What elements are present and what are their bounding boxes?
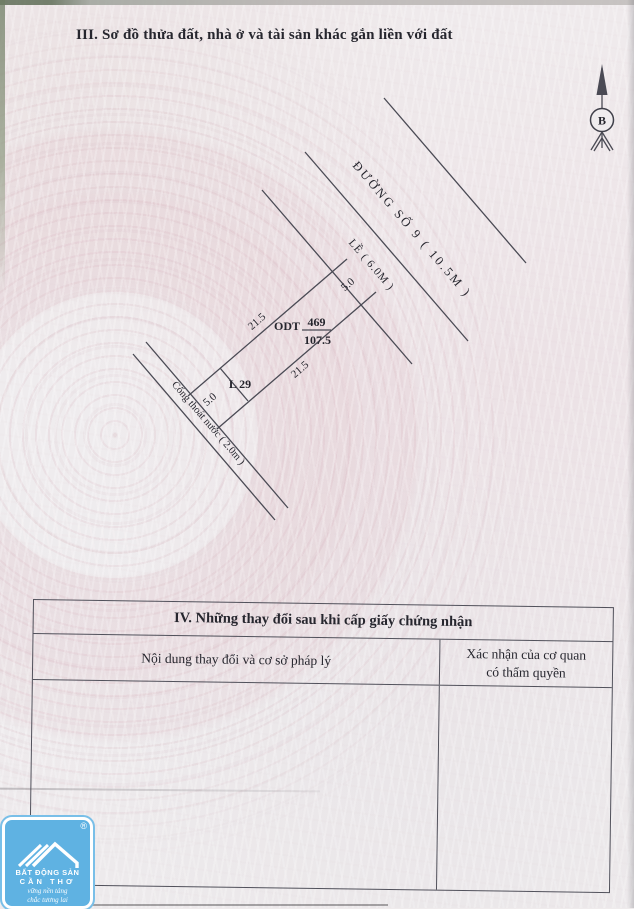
section-iii-title: III. Sơ đồ thửa đất, nhà ở và tài sản kh… bbox=[76, 27, 453, 44]
parcel-side-right bbox=[217, 305, 361, 429]
certificate-page: III. Sơ đồ thửa đất, nhà ở và tài sản kh… bbox=[0, 0, 634, 908]
parcel-back-edge bbox=[220, 368, 248, 401]
brand-name-line1: BẤT ĐỘNG SẢN bbox=[5, 868, 90, 877]
authority-confirmation-cell bbox=[436, 686, 612, 892]
drain-edge-lower bbox=[133, 354, 275, 520]
col-header-authority-line1: Xác nhận của cơ quan bbox=[466, 645, 586, 664]
frontage-line bbox=[262, 190, 412, 364]
sidewalk-label: LỀ ( 6.0M ) bbox=[346, 236, 397, 293]
dimension-front: 5.0 bbox=[339, 275, 358, 293]
dimension-right-side: 21.5 bbox=[289, 359, 312, 381]
scan-edge-top bbox=[0, 0, 634, 5]
col-header-change-content: Nội dung thay đổi và cơ sở pháp lý bbox=[33, 634, 440, 685]
house-icon bbox=[11, 828, 84, 868]
compass-north-label: B bbox=[598, 114, 606, 128]
dimension-back: 5.0 bbox=[201, 390, 220, 408]
parcel-annotation: ODT 469 107.5 bbox=[274, 315, 331, 347]
compass-north-icon: B bbox=[591, 64, 614, 151]
changes-table-header-row: Nội dung thay đổi và cơ sở pháp lý Xác n… bbox=[33, 634, 613, 688]
frontage-tick-b bbox=[361, 292, 376, 305]
land-plot-diagram: B ĐƯỜNG SỐ 9 ( 10.5M ) LỀ ( 6.0M ) 5.0 2… bbox=[0, 0, 634, 575]
road-edge-lower bbox=[305, 152, 468, 341]
brand-logo: ® BẤT ĐỘNG SẢN CẦN THƠ vững nền tảng chắ… bbox=[2, 817, 93, 909]
changes-table-body-row bbox=[30, 680, 612, 892]
col-header-authority-confirmation: Xác nhận của cơ quan có thẩm quyền bbox=[439, 640, 613, 687]
parcel-side-left bbox=[188, 272, 332, 396]
road-edge-upper bbox=[384, 98, 526, 263]
col-header-authority-line2: có thẩm quyền bbox=[486, 663, 566, 682]
dimension-left-side: 21.5 bbox=[246, 311, 269, 333]
brand-slogan-line1: vững nền tảng bbox=[5, 887, 90, 895]
parcel-number: 469 bbox=[308, 315, 326, 329]
frontage-tick-a bbox=[332, 259, 347, 272]
parcel-area: 107.5 bbox=[304, 333, 331, 347]
road-label: ĐƯỜNG SỐ 9 ( 10.5M ) bbox=[350, 158, 475, 300]
paper-crease-bottom bbox=[88, 904, 388, 906]
scan-edge-right bbox=[627, 0, 634, 908]
adjacent-lot-label: L 29 bbox=[229, 377, 251, 391]
changes-table: IV. Những thay đổi sau khi cấp giấy chứn… bbox=[29, 599, 614, 893]
brand-name-line2: CẦN THƠ bbox=[5, 877, 90, 886]
land-use-code: ODT bbox=[274, 319, 300, 333]
brand-slogan-line2: chắc tương lai bbox=[5, 896, 90, 904]
drainage-label: Cống thoát nước ( 2.0m ) bbox=[169, 379, 247, 467]
drain-edge-upper bbox=[146, 342, 288, 508]
scan-edge-left bbox=[0, 0, 5, 295]
